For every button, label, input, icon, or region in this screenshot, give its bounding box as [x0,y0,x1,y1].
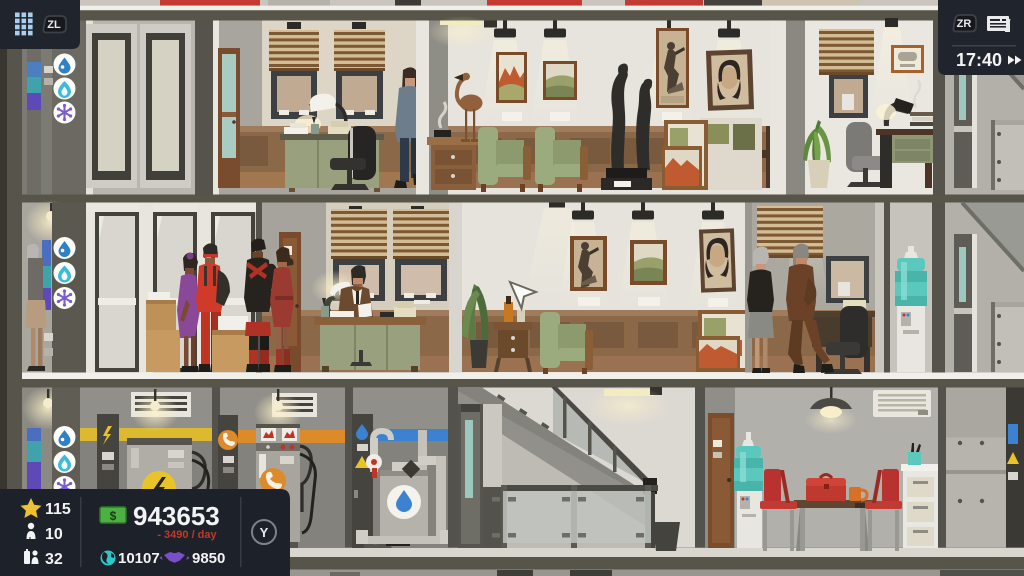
svg-text:$: $ [110,509,117,523]
svg-text:- 3490 / day: - 3490 / day [157,529,217,541]
svg-text:943653: 943653 [133,501,220,531]
svg-text:ZR: ZR [957,18,972,30]
svg-text:Y: Y [260,525,269,540]
svg-text:115: 115 [45,501,71,518]
svg-text:9850: 9850 [192,550,225,567]
svg-text:10: 10 [45,526,63,543]
svg-text:10107: 10107 [118,550,160,567]
svg-text:ZL: ZL [47,19,61,31]
svg-text:17:40: 17:40 [956,50,1002,70]
svg-text:32: 32 [45,551,63,568]
